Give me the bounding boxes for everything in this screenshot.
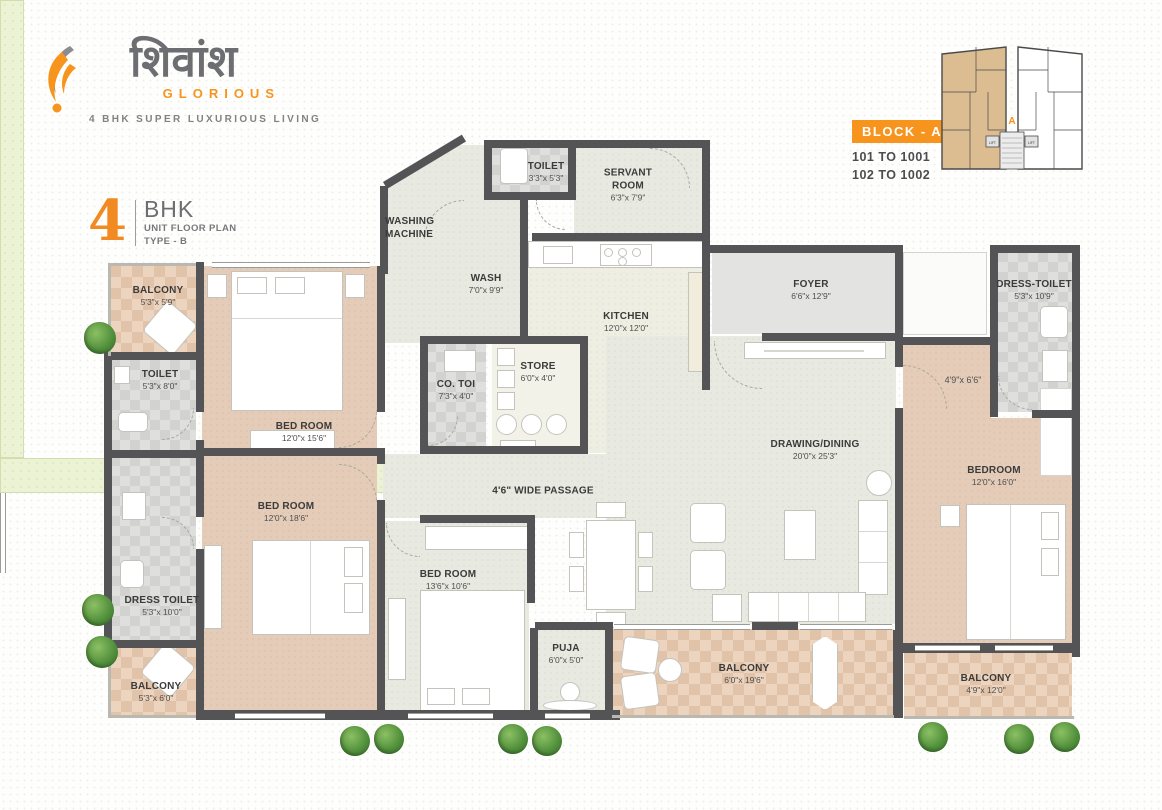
- wall: [377, 266, 385, 412]
- wall: [580, 336, 588, 454]
- blanket-line: [1010, 505, 1011, 639]
- room-label-drawing-dining: DRAWING/DINING20'0"x 25'3": [760, 438, 870, 462]
- pillow-icon: [275, 277, 305, 294]
- sofa-icon: [858, 500, 888, 595]
- room-label-balcony-br: BALCONY4'9"x 12'0": [946, 672, 1026, 696]
- wc-icon: [120, 560, 144, 588]
- lamp-table-icon: [866, 470, 892, 496]
- chair-icon: [596, 502, 626, 518]
- balcony-railing: [612, 715, 894, 718]
- wall: [108, 352, 204, 360]
- pillow-icon: [462, 688, 490, 705]
- window: [995, 645, 1053, 651]
- plant-icon: [1050, 722, 1080, 752]
- room-label-dress-toilet-right: DRESS-TOILET5'3"x 10'9": [991, 278, 1077, 302]
- chair-icon: [638, 566, 653, 592]
- wall: [903, 337, 995, 345]
- burner-icon: [618, 248, 627, 257]
- wall: [196, 448, 381, 456]
- cushion-line: [859, 531, 887, 532]
- side-table-icon: [207, 274, 227, 298]
- lawn-strip-left: [0, 0, 24, 458]
- balcony-railing: [108, 715, 196, 718]
- wall: [420, 515, 532, 523]
- room-label-bedroom-2: BED ROOM12'0"x 18'6": [241, 500, 331, 524]
- wall: [520, 196, 528, 344]
- cushion-line: [838, 593, 839, 621]
- cushion-line: [808, 593, 809, 621]
- unit-letter: A: [1008, 116, 1015, 127]
- chair-icon: [569, 532, 584, 558]
- window: [545, 713, 590, 719]
- unit-number: 4: [88, 196, 127, 246]
- pillow-icon: [1041, 548, 1059, 576]
- balcony-chair-icon: [620, 636, 660, 675]
- room-label-co-toi: CO. TOI7'3"x 4'0": [426, 378, 486, 402]
- wall: [710, 245, 902, 253]
- room-label-dress-toilet-left: DRESS TOILET5'3"x 10'0": [120, 594, 204, 618]
- side-table-icon: [712, 594, 742, 622]
- block-range-1: 101 TO 1001: [852, 150, 930, 164]
- chair-icon: [569, 566, 584, 592]
- wall: [484, 192, 576, 200]
- pillow-icon: [427, 688, 455, 705]
- unit-title: 4 BHK UNIT FLOOR PLAN TYPE - B: [88, 196, 237, 247]
- basin-icon: [1042, 350, 1068, 382]
- plant-icon: [340, 726, 370, 756]
- wall: [484, 140, 492, 198]
- plant-icon: [84, 322, 116, 354]
- room-label-store: STORE6'0"x 4'0": [508, 360, 568, 384]
- burner-icon: [604, 248, 613, 257]
- balcony-railing: [110, 263, 196, 266]
- blanket-line: [232, 318, 342, 319]
- shower-area: [1040, 388, 1072, 476]
- plant-icon: [374, 724, 404, 754]
- duct-area: [903, 252, 987, 335]
- shelf-icon: [497, 392, 515, 410]
- wall: [895, 245, 903, 367]
- lift-label: LIFT: [989, 141, 996, 145]
- brand-name-sub: GLORIOUS: [130, 86, 280, 101]
- balcony-table-icon: [658, 658, 682, 682]
- wardrobe-icon: [204, 545, 222, 629]
- room-label-bedroom-3: BED ROOM13'6"x 10'6": [403, 568, 493, 592]
- block-range-2: 102 TO 1002: [852, 168, 930, 182]
- floor-plan-sheet: शिवांश GLORIOUS 4 BHK SUPER LUXURIOUS LI…: [0, 0, 1162, 810]
- room-label-balcony-tl: BALCONY5'3"x 5'9": [123, 284, 193, 308]
- window: [915, 645, 980, 651]
- wall: [420, 336, 588, 344]
- armchair-icon: [690, 550, 726, 590]
- burner-icon: [618, 257, 627, 266]
- pillow-icon: [344, 583, 363, 613]
- unit-type: BHK: [144, 198, 237, 221]
- room-label-bedroom-4: BEDROOM12'0"x 16'0": [949, 464, 1039, 488]
- room-label-foyer: FOYER6'6"x 12'9": [771, 278, 851, 302]
- plant-icon: [918, 722, 948, 752]
- dining-table-icon: [586, 520, 636, 610]
- basin-icon: [521, 414, 542, 435]
- wall: [752, 622, 798, 630]
- room-label-puja: PUJA6'0"x 5'0": [536, 642, 596, 666]
- wall: [104, 640, 202, 648]
- wall: [1072, 245, 1080, 657]
- wall: [990, 245, 998, 417]
- burner-icon: [632, 248, 641, 257]
- blanket-line: [310, 541, 311, 634]
- flame-logo-icon: [36, 42, 84, 118]
- wall: [702, 140, 710, 390]
- plant-icon: [498, 724, 528, 754]
- armchair-icon: [690, 503, 726, 543]
- wall: [605, 622, 613, 718]
- plant-icon: [532, 726, 562, 756]
- wardrobe-icon: [388, 598, 406, 680]
- room-label-bedroom-1: BED ROOM12'0"x 15'6": [259, 420, 349, 444]
- balcony-chair-icon: [620, 672, 660, 711]
- wall: [990, 245, 1080, 253]
- wall: [484, 140, 710, 148]
- planter-icon: [812, 636, 838, 710]
- wall: [377, 500, 385, 714]
- side-table-icon: [345, 274, 365, 298]
- room-label-balcony-bl: BALCONY5'3"x 6'0": [121, 680, 191, 704]
- lift-label: LIFT: [1028, 141, 1035, 145]
- unit-floor-plan-label: UNIT FLOOR PLAN: [144, 223, 237, 234]
- basin-icon: [546, 414, 567, 435]
- room-label-balcony-middle: BALCONY6'0"x 19'6": [704, 662, 784, 686]
- room-label-kitchen: KITCHEN12'0"x 12'0": [581, 310, 671, 334]
- wc-icon: [1040, 306, 1068, 338]
- window: [0, 493, 6, 573]
- wall: [535, 622, 607, 630]
- brand-name-devanagari: शिवांश: [130, 36, 237, 87]
- coffee-table-icon: [784, 510, 816, 560]
- pillow-icon: [237, 277, 267, 294]
- room-label-toilet-left: TOILET5'3"x 8'0": [125, 368, 195, 392]
- tv-line: [764, 350, 864, 352]
- wc-icon: [118, 412, 148, 432]
- door-arc: [536, 200, 566, 230]
- wall: [762, 333, 902, 341]
- sink-icon: [543, 246, 573, 264]
- sliding-window: [614, 624, 750, 630]
- cushion-line: [778, 593, 779, 621]
- room-label-passage-4: 4'9"x 6'6": [928, 375, 998, 387]
- pillow-icon: [344, 547, 363, 577]
- plant-icon: [86, 636, 118, 668]
- room-label-wash: WASH7'0"x 9'9": [451, 272, 521, 296]
- window: [408, 713, 493, 719]
- sliding-window: [800, 624, 892, 630]
- wardrobe-icon: [425, 526, 528, 550]
- divider: [135, 200, 136, 246]
- plant-icon: [82, 594, 114, 626]
- block-key-plan: LIFT LIFT A: [936, 42, 1088, 174]
- sofa-icon: [748, 592, 866, 622]
- wall: [196, 549, 204, 714]
- room-label-toilet-top: TOILET3'3"x 5'3": [515, 160, 577, 184]
- window: [212, 262, 370, 268]
- window: [235, 713, 325, 719]
- cushion-line: [859, 562, 887, 563]
- basin-icon: [496, 414, 517, 435]
- basin-icon: [122, 492, 146, 520]
- pillow-icon: [1041, 512, 1059, 540]
- plant-icon: [1004, 724, 1034, 754]
- wall: [532, 233, 710, 241]
- wall: [527, 515, 535, 603]
- room-label-passage: 4'6" WIDE PASSAGE: [463, 485, 623, 498]
- chair-icon: [638, 532, 653, 558]
- unit-type-label: TYPE - B: [144, 236, 237, 247]
- wall: [104, 450, 202, 458]
- wall: [196, 262, 204, 412]
- room-label-washing-machine: WASHING MACHINE: [385, 215, 459, 241]
- brand-tagline: 4 BHK SUPER LUXURIOUS LIVING: [89, 114, 321, 125]
- wall: [895, 408, 903, 632]
- balcony-railing: [904, 716, 1074, 719]
- puja-idol-icon: [560, 682, 580, 702]
- side-table-icon: [940, 505, 960, 527]
- wall: [420, 446, 588, 454]
- basin-icon: [444, 350, 476, 372]
- room-label-servant: SERVANT ROOM6'3"x 7'9": [596, 166, 660, 203]
- brand-logo: शिवांश GLORIOUS: [88, 40, 280, 101]
